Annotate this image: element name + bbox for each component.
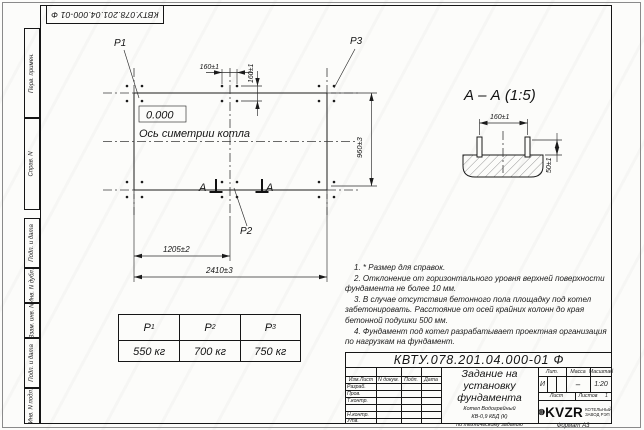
load-table: P1 P2 P3 550 кг 700 кг 750 кг	[118, 314, 301, 362]
svg-text:50±1: 50±1	[546, 157, 553, 173]
section-letter-right: А	[265, 182, 273, 194]
tb-mass-label: Масса	[566, 368, 590, 376]
svg-text:160±1: 160±1	[200, 64, 220, 71]
load-table-header-p3: P3	[240, 315, 300, 340]
tb-subtitle-line2: КВ-0,9 КБД (К)	[441, 414, 538, 420]
elevation-label: 0.000	[146, 110, 174, 122]
svg-text:960±3: 960±3	[355, 136, 364, 158]
tb-row-prov: Пров.	[347, 390, 375, 397]
p1-leader	[124, 50, 139, 98]
kvzr-logo-text: KVZR	[545, 405, 583, 420]
kvzr-logo-caption: КОТЕЛЬНЫЙ ЗАВОД РЭП	[585, 407, 612, 417]
tb-col-izm-list: Изм.Лист	[346, 376, 376, 383]
kvzr-logo: KVZR КОТЕЛЬНЫЙ ЗАВОД РЭП	[538, 400, 612, 424]
svg-text:2410±3: 2410±3	[205, 266, 233, 275]
tb-scale-label: Масштаб	[590, 368, 612, 376]
dim-full-length: 2410±3	[134, 194, 327, 282]
p3-leader	[334, 49, 355, 88]
tb-subtitle-line3: по техническому заданию	[441, 422, 538, 428]
note-1: 1. * Размер для справок.	[345, 263, 609, 274]
load-value-p2: 700 кг	[179, 340, 239, 362]
tb-subtitle-line1: Котел Водогрейный	[441, 406, 538, 412]
plan-centerlines	[103, 68, 358, 218]
tb-lit-value: И	[538, 376, 547, 392]
p2-label: P2	[240, 226, 253, 237]
p1-label: P1	[114, 38, 126, 49]
svg-text:160±1: 160±1	[490, 114, 510, 121]
title-block: КВТУ.078.201.04.000-01 Ф Изм.Лист N доку…	[345, 352, 611, 423]
load-table-header-p1: P1	[119, 315, 179, 340]
svg-text:160±1: 160±1	[248, 63, 255, 83]
tb-col-n-dokum: N докум.	[376, 376, 401, 383]
tb-sheet-label: Лист	[538, 392, 575, 400]
dim-bolt-spacing-h: 160±1	[200, 64, 253, 84]
tb-row-razrab: Разраб.	[347, 383, 375, 390]
section-cut-marks: А А	[198, 179, 273, 194]
tb-title-line1: Задание на	[441, 368, 538, 380]
drawing-sheet: КВТУ.078.201.04.000-01 Ф Перв. примен. С…	[0, 0, 644, 430]
note-2: 2. Отклонение от горизонтального уровня …	[345, 274, 609, 295]
symmetry-axis-label: Ось симетрии котла	[139, 128, 250, 140]
anchor-bolt-left	[477, 137, 482, 157]
load-value-p3: 750 кг	[240, 340, 300, 362]
tb-scale-value: 1:20	[590, 376, 612, 392]
tb-col-podp: Подп.	[401, 376, 421, 383]
section-letter-left: А	[198, 182, 206, 194]
technical-notes: 1. * Размер для справок. 2. Отклонение о…	[345, 263, 609, 348]
note-4: 4. Фундамент под котел разрабатывает про…	[345, 327, 609, 348]
tb-sheets-label: Листов	[575, 392, 601, 400]
dim-width: 960±3	[331, 93, 377, 186]
tb-sheets-value: 1	[601, 392, 612, 400]
tb-row-empty	[347, 404, 375, 411]
load-value-p1: 550 кг	[119, 340, 179, 362]
section-view: А – А (1:5) 160±1 50±1	[463, 87, 562, 177]
load-table-header-p2: P2	[179, 315, 239, 340]
tb-row-utv: Утв.	[347, 418, 375, 424]
tb-col-data: Дата	[421, 376, 441, 383]
plan-view: 0.000 Ось симетрии котла P1 P3 P2 А А 16…	[103, 36, 377, 282]
section-title: А – А (1:5)	[463, 87, 536, 104]
svg-text:1205±2: 1205±2	[163, 245, 190, 254]
tb-title-cell: Задание на установку фундамента Котел Во…	[441, 368, 538, 424]
kvzr-logo-emblem	[538, 403, 545, 421]
note-3: 3. В случае отсутствия бетонного пола пл…	[345, 295, 609, 327]
section-dim-bolt-spacing: 160±1	[480, 114, 528, 135]
tb-row-nkontr: Н.контр.	[347, 411, 375, 418]
tb-lit-label: Лит.	[538, 368, 566, 376]
p3-label: P3	[350, 36, 363, 47]
format-label: Формат А3	[535, 423, 611, 429]
tb-title-line3: фундамента	[441, 392, 538, 404]
tb-row-tkontr: Т.контр.	[347, 397, 375, 404]
tb-mass-value: –	[566, 376, 590, 392]
title-block-doc-number: КВТУ.078.201.04.000-01 Ф	[346, 353, 612, 368]
p2-leader	[234, 188, 247, 226]
tb-title-line2: установку	[441, 380, 538, 392]
anchor-bolt-right	[525, 137, 530, 157]
